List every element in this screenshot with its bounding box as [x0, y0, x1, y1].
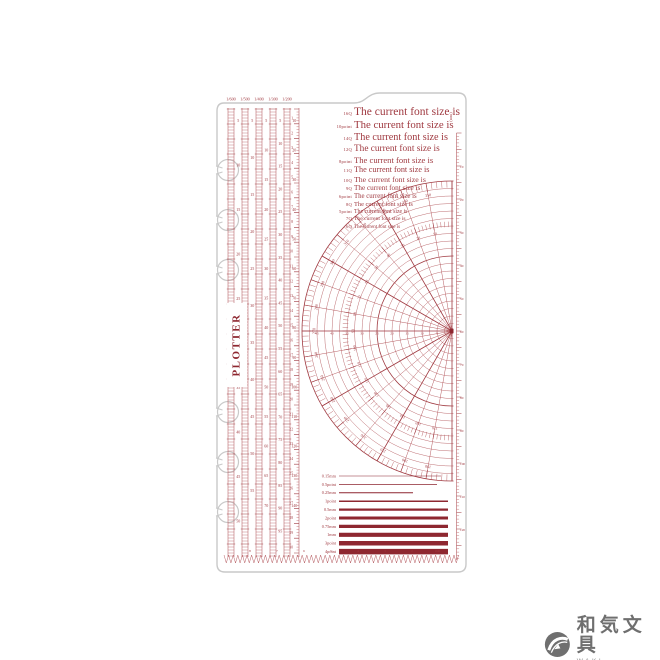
scale-number: 5: [237, 118, 239, 123]
scale-number: 30: [264, 266, 268, 271]
scale-number: 50: [264, 384, 268, 389]
font-sample-text: The current font size is: [354, 132, 448, 144]
font-sample-line: 8QThe current font size is: [311, 201, 461, 209]
cm-number: 19: [289, 383, 293, 387]
scale-number: 25: [236, 296, 240, 301]
line-sample-label: 2point: [325, 515, 337, 520]
scale-header: 1/600: [226, 97, 236, 102]
scale-number: 50: [250, 451, 254, 456]
font-sample-size-label: 9Q: [311, 186, 354, 191]
scale-number: 35: [264, 296, 268, 301]
brand-name: PLOTTER: [231, 313, 243, 376]
scale-header: 1/400: [254, 97, 264, 102]
cm-number: 4: [291, 161, 293, 165]
cm-number: 5: [291, 176, 293, 180]
scale-number: 40: [236, 430, 240, 435]
axis-mm-label: 5: [436, 332, 438, 336]
font-sample-size-label: 6Q: [311, 224, 354, 229]
font-sample-text: The current font size is: [354, 155, 433, 165]
mm-number: 100: [460, 462, 465, 466]
font-sample-line: 11QThe current font size is: [311, 165, 461, 175]
cm-number: 21: [289, 413, 293, 417]
scale-number: 40: [278, 278, 282, 283]
cm-number: 9: [291, 235, 293, 239]
mm-number: 40: [460, 264, 464, 268]
cm-number: 10: [289, 250, 293, 254]
axis-mm-label: 30: [360, 332, 364, 336]
cm-number: 15: [289, 324, 293, 328]
cm-number: 14: [289, 309, 293, 313]
bottom-number: 6: [303, 549, 305, 553]
font-sample-line: 14QThe current font size is: [311, 132, 461, 144]
scale-number: 10: [236, 163, 240, 168]
font-sample-line: 10pointThe current font size is: [311, 119, 461, 132]
scale-number: 90: [278, 506, 282, 511]
scale-number: 20: [264, 207, 268, 212]
scale-number: 60: [264, 444, 268, 449]
scale-number: 35: [278, 255, 282, 260]
font-sample-size-label: 7Q: [311, 216, 354, 221]
scale-number: 55: [278, 346, 282, 351]
mm-number: 120: [460, 528, 465, 532]
scale-number: 20: [278, 186, 282, 191]
cm-number: 3: [291, 146, 293, 150]
scale-number: 65: [278, 392, 282, 397]
font-sample-line: 7QThe current font size is: [311, 216, 461, 223]
scale-number: 20: [250, 229, 254, 234]
cm-number: 23: [289, 442, 293, 446]
line-sample-label: 0.15mm: [322, 473, 337, 478]
font-sample-size-label: 5point: [311, 209, 354, 214]
scale-number: 55: [264, 414, 268, 419]
font-sample-line: 6pointThe current font size is: [311, 193, 461, 201]
axis-mm-label: 10: [420, 332, 424, 336]
cm-number: 7: [291, 205, 293, 209]
scale-number: 50: [236, 519, 240, 524]
font-sample-size-label: 11Q: [311, 168, 354, 173]
mm-number: 60: [460, 330, 464, 334]
scale-number: 25: [278, 209, 282, 214]
scale-number: 5: [279, 118, 281, 123]
cm-number: 13: [289, 294, 293, 298]
scale-number: 70: [278, 414, 282, 419]
font-size-specimen-block: 16QThe current font size is10pointThe cu…: [311, 106, 461, 231]
scale-number: 45: [236, 474, 240, 479]
line-sample-label: 1mm: [327, 532, 336, 537]
scale-number: 30: [278, 232, 282, 237]
plotter-ruler-template: 1/600510152025354045501/5005101520253035…: [0, 0, 660, 660]
cm-number: 28: [289, 516, 293, 520]
product-image: 1/600510152025354045501/5005101520253035…: [0, 0, 660, 660]
bottom-number: 8: [249, 549, 251, 553]
font-sample-line: 8pointThe current font size is: [311, 155, 461, 165]
scale-number: 15: [278, 164, 282, 169]
scale-header: 1/300: [268, 97, 278, 102]
scale-number: 95: [278, 528, 282, 533]
scale-number: 25: [264, 236, 268, 241]
bottom-number: 5: [330, 549, 332, 553]
degree-label-outer: 260: [313, 352, 319, 359]
line-sample-label: 0.75mm: [322, 524, 337, 529]
cm-number: 30: [289, 546, 293, 550]
scale-number: 10: [250, 155, 254, 160]
bottom-number: 4: [357, 549, 359, 553]
scale-header: 1/200: [282, 97, 292, 102]
line-sample-label: 3point: [325, 541, 337, 546]
font-sample-text: The current font size is: [354, 193, 417, 201]
font-sample-text: The current font size is: [354, 175, 426, 184]
font-sample-size-label: 6point: [311, 194, 354, 199]
scale-number: 20: [236, 252, 240, 257]
brand-logotype: PLOTTER: [227, 303, 247, 387]
mm-number: 80: [460, 396, 464, 400]
degree-label-outer: 190: [425, 464, 432, 470]
cm-number: 12: [289, 279, 293, 283]
cm-number: 17: [289, 353, 293, 357]
degree-label-inner: 80: [353, 312, 358, 317]
scale-number: 45: [264, 355, 268, 360]
font-sample-text: The current font size is: [354, 165, 429, 175]
degree-label-inner: 10: [433, 232, 438, 237]
font-sample-line: 16QThe current font size is: [311, 106, 461, 119]
scale-number: 50: [278, 323, 282, 328]
mm-number: 110: [460, 495, 465, 499]
font-sample-size-label: 8Q: [311, 202, 354, 207]
scale-number: 15: [264, 177, 268, 182]
axis-mm-label: 15: [405, 332, 409, 336]
font-sample-text: The current font size is: [354, 201, 413, 209]
font-sample-text: The current font size is: [354, 106, 460, 119]
mm-number: 70: [460, 363, 464, 367]
cm-number: 25: [289, 472, 293, 476]
axis-mm-label: 40: [330, 332, 334, 336]
font-sample-size-label: 16Q: [311, 111, 354, 116]
axis-mm-label: 35: [345, 332, 349, 336]
cm-number: 1: [291, 117, 293, 121]
font-sample-line: 10QThe current font size is: [311, 175, 461, 184]
line-sample-label: 0.5mm: [324, 507, 337, 512]
bottom-number: 3: [384, 549, 386, 553]
cm-number: 20: [289, 398, 293, 402]
font-sample-size-label: 10Q: [311, 178, 354, 183]
scale-number: 55: [250, 488, 254, 493]
cm-number: 24: [289, 457, 293, 461]
cm-number: 11: [290, 265, 294, 269]
scale-number: 5: [265, 118, 267, 123]
cm-number: 22: [289, 427, 293, 431]
cm-number: 6: [291, 191, 293, 195]
font-sample-size-label: 14Q: [311, 136, 354, 141]
line-sample-label: 0.5point: [322, 482, 337, 487]
degree-label-inner: 90: [352, 329, 356, 333]
bottom-number: 160: [434, 549, 439, 553]
scale-number: 15: [236, 207, 240, 212]
scale-number: 70: [264, 503, 268, 508]
scale-number: 80: [278, 460, 282, 465]
axis-mm-label: 45: [315, 332, 319, 336]
axis-mm-label: 25: [375, 332, 379, 336]
scale-number: 40: [264, 325, 268, 330]
mm-number: 90: [460, 429, 464, 433]
mm-number: 30: [460, 231, 464, 235]
cm-number: 27: [289, 501, 293, 505]
shop-logo-icon: [544, 629, 571, 660]
cm-number: 2: [291, 131, 293, 135]
scale-number: 30: [250, 303, 254, 308]
font-sample-text: The current font size is: [354, 225, 400, 231]
cm-number: 29: [289, 531, 293, 535]
scale-number: 75: [278, 437, 282, 442]
scale-number: 65: [264, 473, 268, 478]
bottom-number: 2: [411, 549, 413, 553]
axis-mm-label: 20: [390, 332, 394, 336]
font-sample-line: 9QThe current font size is: [311, 184, 461, 193]
scale-number: 45: [250, 414, 254, 419]
cm-number: 8: [291, 220, 293, 224]
cm-number: 26: [289, 487, 293, 491]
font-sample-text: The current font size is: [354, 216, 406, 223]
font-sample-line: 6QThe current font size is: [311, 224, 461, 231]
scale-header: 1/500: [240, 97, 250, 102]
cm-number: 16: [289, 339, 293, 343]
shop-logo: 和気文具 WAKI STATIONERY: [544, 616, 660, 660]
scale-number: 85: [278, 483, 282, 488]
mm-number: 50: [460, 297, 464, 301]
scale-number: 40: [250, 377, 254, 382]
line-sample-label: 1point: [325, 499, 337, 504]
scale-number: 60: [278, 369, 282, 374]
bottom-number: 7: [276, 549, 278, 553]
font-sample-text: The current font size is: [354, 184, 420, 193]
scale-number: 35: [250, 340, 254, 345]
cm-number: 18: [289, 368, 293, 372]
scale-number: 25: [250, 266, 254, 271]
scale-number: 45: [278, 300, 282, 305]
font-sample-text: The current font size is: [354, 144, 440, 155]
font-sample-text: The current font size is: [354, 119, 454, 132]
font-sample-size-label: 10point: [311, 124, 354, 129]
font-sample-size-label: 12Q: [311, 147, 354, 152]
scale-number: 5: [251, 118, 253, 123]
line-sample-label: 0.25mm: [322, 490, 337, 495]
scale-number: 15: [250, 192, 254, 197]
scale-number: 10: [264, 148, 268, 153]
degree-label-outer: 280: [313, 304, 319, 311]
scale-number: 10: [278, 141, 282, 146]
shop-name-japanese: 和気文具: [577, 616, 660, 656]
font-sample-line: 12QThe current font size is: [311, 144, 461, 155]
font-sample-size-label: 8point: [311, 159, 354, 164]
